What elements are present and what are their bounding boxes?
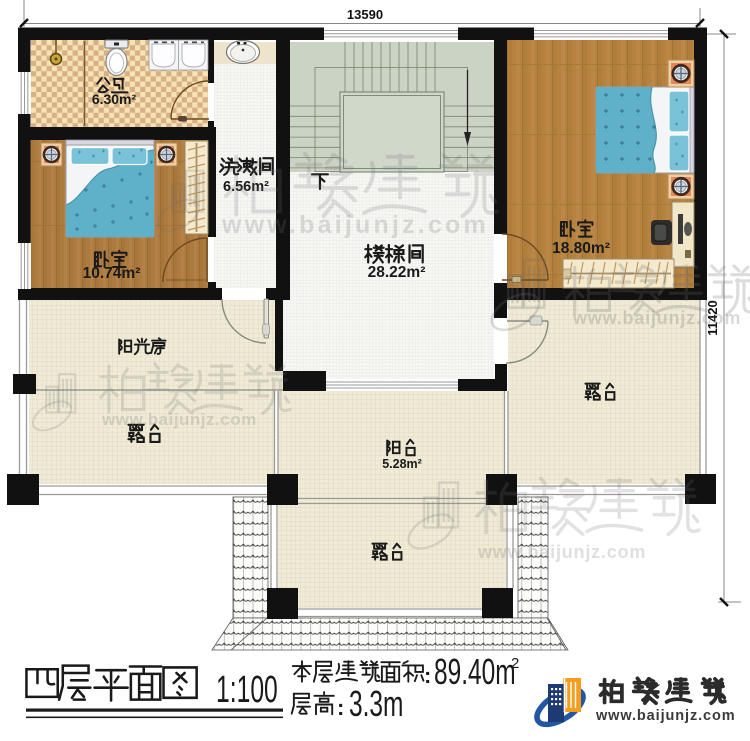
- svg-text:10.74m²: 10.74m²: [83, 265, 141, 282]
- svg-text:89.40m: 89.40m: [434, 651, 516, 692]
- svg-text:28.22m²: 28.22m²: [368, 264, 426, 281]
- svg-text:18.80m²: 18.80m²: [552, 240, 610, 257]
- svg-text:www.baijunjz.com: www.baijunjz.com: [477, 542, 646, 562]
- svg-text:www.baijunjz.com: www.baijunjz.com: [101, 410, 257, 429]
- svg-text::: :: [337, 695, 344, 720]
- svg-text:www.baijunjz.com: www.baijunjz.com: [221, 211, 489, 239]
- svg-text:1:100: 1:100: [216, 668, 278, 711]
- svg-text:6.30m²: 6.30m²: [92, 91, 137, 107]
- svg-text:www.baijunjz.com: www.baijunjz.com: [572, 308, 741, 328]
- svg-text:www.baijunjz.com: www.baijunjz.com: [595, 708, 736, 724]
- svg-text:13590: 13590: [347, 7, 383, 22]
- svg-text:5.28m²: 5.28m²: [382, 457, 422, 471]
- svg-text:3.3m: 3.3m: [349, 683, 403, 724]
- svg-text:2: 2: [511, 655, 519, 672]
- svg-text::: :: [424, 663, 431, 688]
